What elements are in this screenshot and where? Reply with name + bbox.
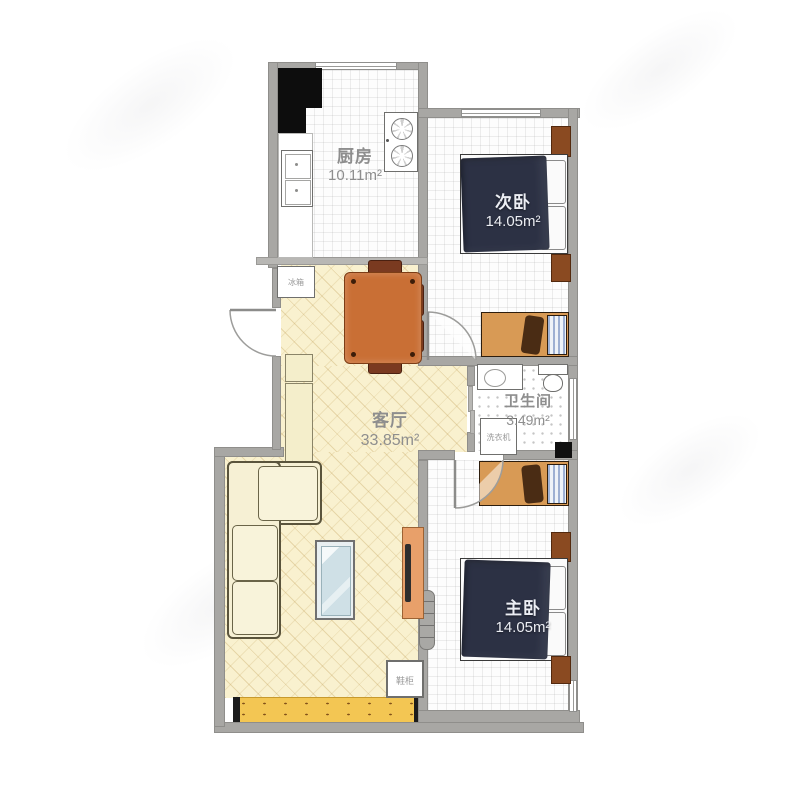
tv bbox=[405, 544, 411, 602]
kitchen-sink bbox=[281, 150, 313, 207]
bathroom-door-panel bbox=[468, 386, 473, 412]
kitchen-counter-black bbox=[306, 68, 322, 108]
nightstand bbox=[551, 656, 571, 684]
side-cabinet bbox=[285, 354, 313, 382]
kitchen-stove bbox=[384, 112, 418, 172]
floor-plan: 厨房 10.11m² 次卧 14.05m² 洗衣机 卫生间 3.49m² 主卧 … bbox=[0, 0, 800, 800]
window-master bbox=[569, 680, 577, 712]
dining-table bbox=[344, 272, 422, 364]
wall-bathroom-left-upper bbox=[467, 366, 475, 386]
washing-machine bbox=[480, 418, 517, 455]
watermark-smudge bbox=[34, 5, 266, 205]
wall-left-lower bbox=[214, 447, 225, 727]
sofa-cushion bbox=[232, 581, 278, 635]
coffee-table bbox=[315, 540, 355, 620]
entry-door-arc bbox=[230, 310, 276, 356]
watermark-smudge bbox=[555, 0, 765, 160]
wall-kitchen-left bbox=[268, 62, 278, 268]
shoe-cabinet bbox=[386, 660, 424, 698]
wall-kitchen-bottom-thin bbox=[256, 257, 428, 265]
fridge bbox=[277, 266, 315, 298]
toilet-bowl bbox=[543, 374, 563, 392]
bathroom-shaft bbox=[555, 442, 572, 458]
nightstand bbox=[551, 254, 571, 282]
side-cabinet bbox=[285, 383, 313, 462]
bay-window-strip bbox=[233, 697, 421, 724]
sofa-cushion bbox=[232, 525, 278, 581]
wall-bottom-outer bbox=[214, 722, 584, 733]
wall-entry-lower bbox=[272, 356, 281, 450]
kitchen-counter-black bbox=[278, 68, 306, 133]
sofa-cushion bbox=[258, 466, 318, 521]
window-kitchen bbox=[315, 62, 397, 70]
desk-chair bbox=[521, 464, 544, 504]
bed-duvet bbox=[461, 560, 550, 660]
wardrobe bbox=[547, 464, 567, 504]
bed-duvet bbox=[460, 156, 549, 253]
bathroom-door-panel bbox=[470, 410, 475, 434]
bathroom-vanity bbox=[477, 364, 523, 390]
bay-window-end bbox=[233, 697, 240, 723]
nightstand bbox=[551, 126, 571, 157]
wall-master-top-left bbox=[418, 450, 455, 460]
window-bedroom2 bbox=[461, 109, 541, 117]
wall-bathroom-left-lower bbox=[467, 432, 475, 452]
watermark-smudge bbox=[593, 386, 786, 555]
wardrobe bbox=[547, 315, 567, 355]
window-bathroom bbox=[569, 378, 577, 440]
